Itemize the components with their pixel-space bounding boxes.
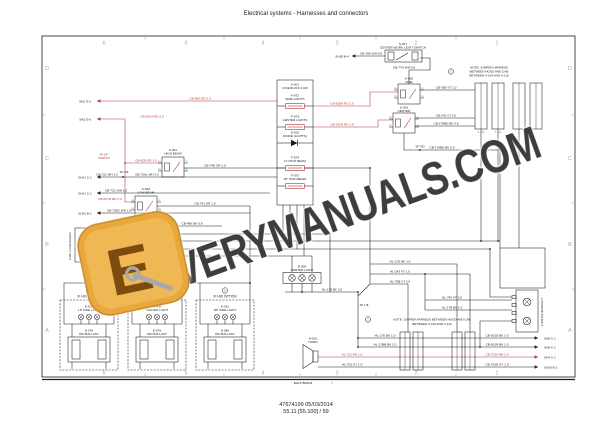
wire-label: A-001 <box>291 83 300 87</box>
offsheet-arrow <box>535 365 538 368</box>
wire-label: E-007 LH HEADLIGHT <box>68 232 72 260</box>
wire-label: SP-726 <box>120 170 129 174</box>
horn-icon <box>313 351 318 362</box>
grid-col-label: 4 <box>261 371 264 377</box>
wire-label: CB-001D BK 1.0 <box>486 333 509 337</box>
splice-dot <box>480 240 482 242</box>
splice-dot <box>424 273 426 275</box>
relay-body <box>162 157 184 177</box>
wire-label: CB-00GA RD 2.0 <box>140 115 164 119</box>
hid-ballast-cell <box>98 340 106 359</box>
relay-coil <box>396 119 401 127</box>
wire-label: SP-027 <box>100 153 109 157</box>
wire-label: CB-242N RD 1.0 <box>330 123 353 127</box>
grid-col-label: 1 <box>495 41 498 47</box>
wire-label: BAIL47806644 <box>294 381 313 385</box>
wire <box>396 53 408 60</box>
wire-label: SH28 B-6 <box>98 156 110 160</box>
note-ref-number: 1 <box>224 289 226 293</box>
pin <box>512 304 516 307</box>
relay-coil <box>401 90 406 98</box>
wire-label: HL-740 VT 2.0 <box>442 296 462 300</box>
wire-label: HL-243 VT 1.0 <box>390 270 410 274</box>
wire-label: CB-76N WH 0.8 <box>360 52 382 56</box>
grid-row-label: C <box>45 156 49 162</box>
wire-label: CB-49E BK 0.8 <box>182 221 203 225</box>
relay-pin-number: 87 <box>421 88 424 90</box>
relay-pin-number: 85 <box>394 96 397 98</box>
relay-pin-number: 30 <box>158 208 161 210</box>
watermark-logo: E <box>74 208 193 319</box>
wire-label: CB-741 OR 1.0 <box>194 201 215 205</box>
switch-terminal <box>388 52 394 60</box>
wire-label: HL-17E BK 1.0 <box>375 333 396 337</box>
relay-contact <box>146 201 153 211</box>
relay-body <box>398 84 420 104</box>
wire-label: CB-74N OR 1.0 <box>204 163 226 167</box>
wire-label: CB-001N BK 1.0 <box>486 342 509 346</box>
splice-dot <box>369 167 371 169</box>
note-ref-number: 2 <box>450 70 452 74</box>
relay-pin-number: 85 <box>131 208 134 210</box>
wire <box>358 284 370 296</box>
rh-headlight-body <box>516 290 538 332</box>
grid-col-label: 4 <box>261 41 264 47</box>
wire-label: CB-72L WH 1.0 <box>96 173 118 177</box>
relay-pin-number: 85 <box>389 125 392 127</box>
relay-contact <box>404 118 411 128</box>
hid-ballast-cell <box>166 340 174 359</box>
wire-label: CB-722A RD 1.0 <box>486 352 509 356</box>
wire-label: SH2 D-6 <box>79 117 91 121</box>
wire-label: SH31 C-1 <box>78 175 92 179</box>
diode-icon <box>291 140 298 146</box>
wire-label: CB-62YN RD 1.0 <box>98 197 122 201</box>
wire-label: SP-178 <box>360 303 369 307</box>
relay-pin-number: 30 <box>185 169 188 171</box>
footer-doc-number: 47674199 05/03/2014 <box>0 402 612 409</box>
offsheet-arrow <box>97 99 100 102</box>
splice-dot <box>124 162 126 164</box>
offsheet-arrow <box>535 345 538 348</box>
wire-label: HID BALLAST <box>147 332 167 336</box>
wire-label: DIODE (LIGHTS) <box>283 134 307 138</box>
wire-label: IF HID OPTION <box>213 295 237 299</box>
relay-pin-number: 86 <box>389 117 392 119</box>
wire-label: E-005 RH HEADLIGHT <box>540 298 544 326</box>
relay-coil <box>138 202 143 210</box>
wire-label: HL-722 RD 1.0 <box>342 352 363 356</box>
splice-dot <box>357 337 359 339</box>
grid-col-label: 5 <box>184 371 187 377</box>
pin <box>512 320 516 323</box>
wire-label: SP-76D <box>415 144 424 148</box>
pin <box>512 312 516 315</box>
splice-dot <box>122 176 124 178</box>
wire-label: CENTER LIGHT <box>146 308 169 312</box>
hid-ballast <box>204 337 246 362</box>
wire-label: CB-62BA RD 2.0 <box>330 102 353 106</box>
splice-dot <box>301 291 303 293</box>
wire-label: CENTER LIGHT <box>291 268 314 272</box>
offsheet-arrow <box>535 336 538 339</box>
wire-label: CB-72BC WH 1.0 <box>107 209 132 213</box>
wire-label: HL-17D BK 1.0 <box>390 260 411 264</box>
switch-terminal <box>412 52 418 60</box>
connector-box <box>500 248 545 288</box>
wire-label: CENTER WORK LIGHT SWITCH <box>380 46 426 50</box>
grid-col-label: 2 <box>414 371 417 377</box>
relay-pin-number: 86 <box>131 200 134 202</box>
relay-contact <box>173 162 180 172</box>
grid-row-label: C <box>568 156 572 162</box>
wire-label: SH8 C-1 <box>544 345 556 349</box>
note-ref-number: 1 <box>367 318 369 322</box>
wire-label: SIDE <box>405 80 412 84</box>
relay-coil <box>165 163 170 171</box>
offsheet-arrow <box>535 355 538 358</box>
wire-label: LOW BEAM <box>138 191 155 195</box>
splice-dot <box>489 248 491 250</box>
offsheet-arrow <box>97 117 100 120</box>
grid-row-label: B <box>568 242 572 248</box>
wire-label: HID BALLAST <box>215 332 235 336</box>
wire-label: NOTE: JUMPER HARNESS BETWEEN HOOD AND CA… <box>393 317 470 321</box>
wire <box>313 92 398 106</box>
pin <box>512 296 516 299</box>
grid-row-label: A <box>45 328 49 334</box>
hid-ballast-cell <box>234 340 242 359</box>
grid-col-label: 6 <box>102 371 105 377</box>
page-footer: 47674199 05/03/2014 55.11 [55.100] / 59 <box>0 402 612 416</box>
wire-label: SH2 D-6 <box>79 99 91 103</box>
wire-label: SH31 C-1 <box>78 191 92 195</box>
wire-label: SH31 B-1 <box>78 211 92 215</box>
splice-dot <box>249 282 251 284</box>
wire-label: CB-72AL WH 1.0 <box>135 173 159 177</box>
wire-label: HL-723 GY 1.0 <box>342 362 363 366</box>
watermark-text: EVERYMANUALS.COM <box>144 116 547 305</box>
wire-label: CB-62N RD 1.0 <box>135 158 157 162</box>
wire-label: RT HIGH BEAM <box>284 177 307 181</box>
offsheet-arrow <box>352 54 355 57</box>
relay-pin-number: 86 <box>158 161 161 163</box>
wire-label: HORN <box>308 340 317 344</box>
grid-col-label: 3 <box>335 41 338 47</box>
offsheet-arrow <box>97 211 100 214</box>
wire-label: CB-178BD BK 0.8 <box>434 122 459 126</box>
wire-label: CB-00A RD 2.0 <box>189 97 210 101</box>
hid-ballast-cell <box>140 340 148 359</box>
wire-label: CB-73B VT 1.0 <box>436 86 457 90</box>
splice-dot <box>479 346 481 348</box>
wire-label: RH SIDE LIGHT <box>214 308 237 312</box>
wire-label: HL-17BB BK 2.0 <box>374 342 397 346</box>
wire-label: HL-178 BK 2.0 <box>322 288 343 292</box>
grid-col-label: 5 <box>184 41 187 47</box>
wire-label: HL-79B VT 2.0 <box>390 280 411 284</box>
wire-label: LT HIGH BEAM <box>284 159 306 163</box>
grid-col-label: 6 <box>102 41 105 47</box>
wire-label: HL-17B BK 1.0 <box>442 306 463 310</box>
hid-ballast <box>68 337 110 362</box>
wire-label: SH8 C-1 <box>544 336 556 340</box>
wiring-diagram: 665544332211DDCCBBAA86858730868587308685… <box>0 0 612 432</box>
horn-icon <box>303 345 313 369</box>
hid-ballast-cell <box>208 340 216 359</box>
relay-pin-number: 85 <box>158 169 161 171</box>
relay-pin-number: 87 <box>158 200 161 202</box>
wire-label: CB-723N GY 1.0 <box>485 362 508 366</box>
wire-label: CENTER LIGHTS <box>283 118 308 122</box>
wire-label: HID BALLAST <box>79 332 99 336</box>
wire-label: SH28 B-4 <box>335 54 349 58</box>
splice-dot <box>497 240 499 242</box>
splice-dot <box>419 149 421 151</box>
wire-label: SH30 B-1 <box>544 365 558 369</box>
offsheet-arrow <box>97 191 100 194</box>
relay-pin-number: 30 <box>421 96 424 98</box>
grid-row-label: D <box>568 66 572 72</box>
footer-page-number: 55.11 [55.100] / 59 <box>0 409 612 416</box>
wire-label: 7 <box>331 381 333 385</box>
hid-ballast <box>136 337 178 362</box>
splice-dot <box>357 346 359 348</box>
grid-col-label: 1 <box>495 371 498 377</box>
grid-row-label: B <box>45 242 49 248</box>
wire-label: FUSE BLOCK X-040 <box>283 86 308 90</box>
wire-label: CB-241 VT 2.0 <box>436 114 457 118</box>
splice-dot <box>357 291 359 293</box>
manual-page: Electrical systems - Harnesses and conne… <box>0 0 612 432</box>
wire-label: CB-77N WH 0.8 <box>393 66 415 70</box>
relay-pin-number: 86 <box>394 88 397 90</box>
grid-col-label: 3 <box>335 371 338 377</box>
grid-row-label: A <box>568 328 572 334</box>
hid-ballast-cell <box>72 340 80 359</box>
wire-label: CENTER <box>398 109 411 113</box>
relay-pin-number: 87 <box>185 161 188 163</box>
relay-contact <box>409 89 416 99</box>
wire-label: BETWEEN X-109 AND X-110 <box>469 74 509 78</box>
wire-label: CB-72C WH 1.0 <box>105 189 127 193</box>
grid-row-label: D <box>45 66 49 72</box>
relay-body <box>393 113 415 133</box>
wire-label: HIGH BEAM <box>164 152 182 156</box>
wire-label: BETWEEN X-109 AND X-110 <box>412 322 452 326</box>
wire-label: SIDE LIGHTS <box>285 97 304 101</box>
wire-label: SH4 C-1 <box>544 355 556 359</box>
